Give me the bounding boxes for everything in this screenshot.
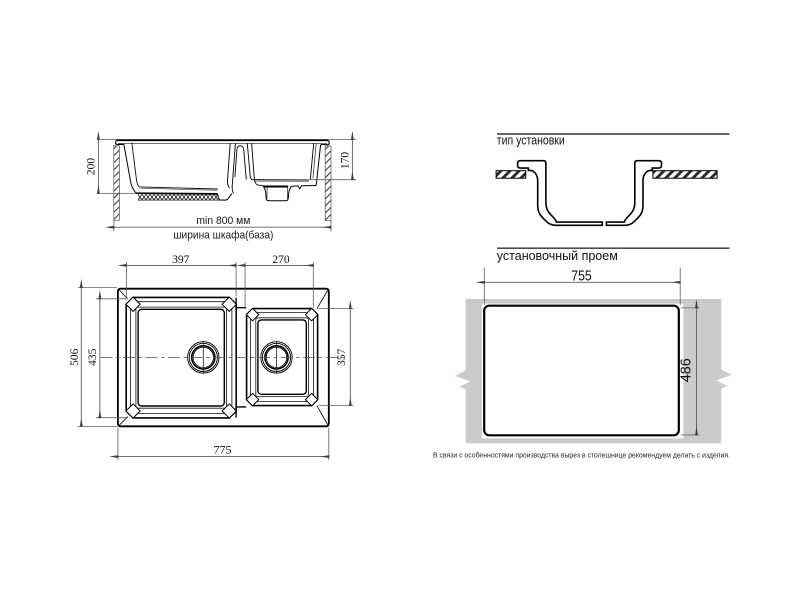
svg-text:min 800 мм: min 800 мм xyxy=(196,215,250,227)
svg-text:397: 397 xyxy=(172,254,190,266)
svg-text:200: 200 xyxy=(86,158,98,176)
svg-text:357: 357 xyxy=(336,348,348,366)
svg-text:506: 506 xyxy=(69,348,81,366)
svg-text:тип установки: тип установки xyxy=(497,134,565,148)
svg-text:ширина шкафа(база): ширина шкафа(база) xyxy=(173,230,273,242)
svg-text:В связи с особенностями произв: В связи с особенностями производства выр… xyxy=(433,451,730,460)
svg-text:435: 435 xyxy=(87,348,99,366)
svg-text:486: 486 xyxy=(678,358,695,382)
svg-text:755: 755 xyxy=(571,268,592,285)
svg-text:775: 775 xyxy=(214,442,232,456)
svg-text:установочный проем: установочный проем xyxy=(497,249,618,263)
svg-text:270: 270 xyxy=(272,254,290,266)
svg-text:170: 170 xyxy=(339,152,351,170)
